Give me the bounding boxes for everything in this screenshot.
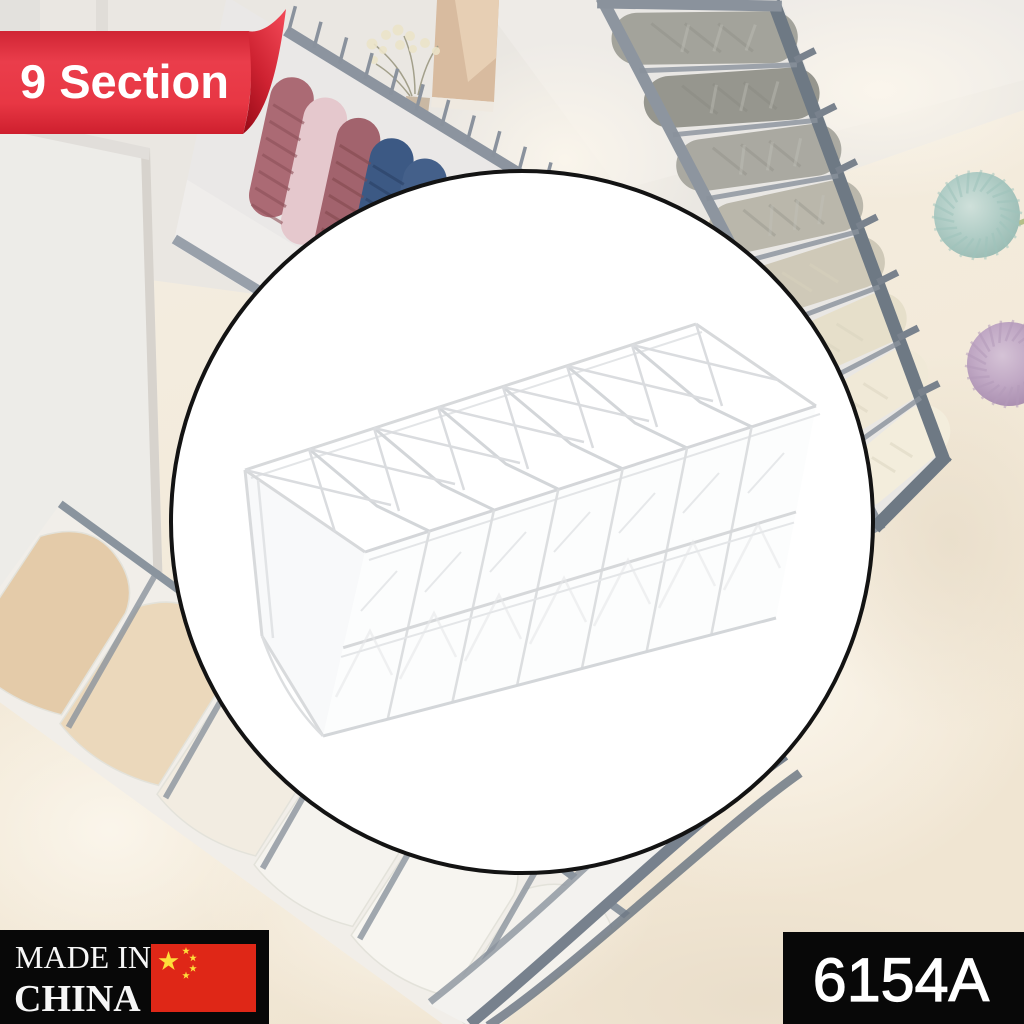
svg-text:MADE IN: MADE IN: [15, 939, 151, 975]
svg-text:9 Section: 9 Section: [20, 55, 229, 108]
svg-text:CHINA: CHINA: [14, 978, 141, 1020]
svg-text:6154A: 6154A: [813, 946, 990, 1014]
